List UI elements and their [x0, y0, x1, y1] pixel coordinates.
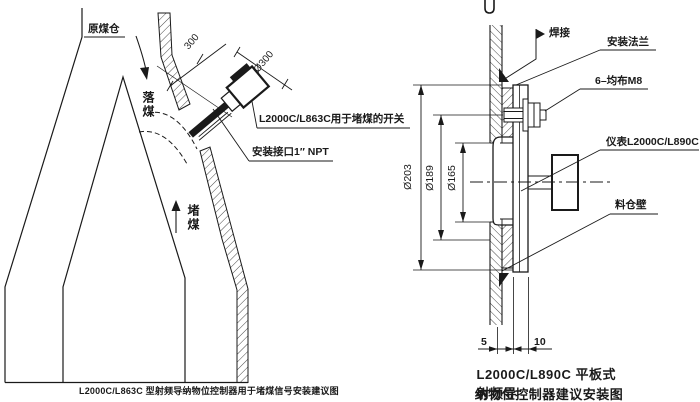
port-note-leader: [213, 109, 249, 161]
bunker-cone: [63, 77, 185, 383]
probe-instrument: [178, 62, 268, 145]
bolt-label: 6–均布M8: [595, 76, 642, 88]
technical-drawing-page: 原煤仓 落煤 堵煤 300 Ø300 L2000C/L863C用于堵煤的开关 安…: [0, 0, 700, 402]
left-caption: L2000C/L863C 型射频导纳物位控制器用于堵煤信号安装建议图: [79, 384, 339, 397]
weld-label: 焊接: [549, 28, 570, 40]
top-stud: [485, 0, 494, 13]
dim-300-line: [170, 44, 226, 86]
instrument-label: 仪表L2000C/L890C: [606, 137, 699, 149]
chute-wall-lower: [200, 147, 248, 383]
switch-note-label: L2000C/L863C用于堵煤的开关: [259, 114, 404, 126]
dim-d165-label: Ø165: [446, 165, 458, 191]
blocked-coal-arrowhead: [172, 200, 181, 211]
right-caption-line2: 纳物位控制器建议安装图: [475, 384, 624, 402]
dim-d203-label: Ø203: [402, 164, 414, 190]
port-note-label: 安装接口1″ NPT: [252, 147, 329, 159]
flange-label: 安装法兰: [607, 37, 649, 49]
bunker-label: 原煤仓: [88, 24, 120, 36]
blocked-coal-label: 堵煤: [185, 204, 202, 232]
weld-fillet: [499, 273, 509, 287]
weld-flag: [503, 29, 536, 80]
falling-coal-arrowhead: [140, 67, 149, 80]
dim-10-label: 10: [534, 336, 546, 348]
silo-wall-label: 料仓壁: [615, 200, 647, 212]
housing-neck: [528, 176, 552, 189]
diagram-canvas: [0, 0, 700, 402]
sensing-plate: [493, 137, 513, 225]
left-diagram-linework: [5, 8, 410, 383]
dim-d189-label: Ø189: [424, 165, 436, 191]
blockage-arc: [139, 131, 187, 164]
dim-5-label: 5: [481, 336, 487, 348]
falling-coal-arrow: [136, 36, 146, 70]
falling-coal-label: 落煤: [140, 91, 157, 119]
chute-wall-upper: [158, 13, 190, 110]
bunker-left-wall: [5, 8, 82, 383]
